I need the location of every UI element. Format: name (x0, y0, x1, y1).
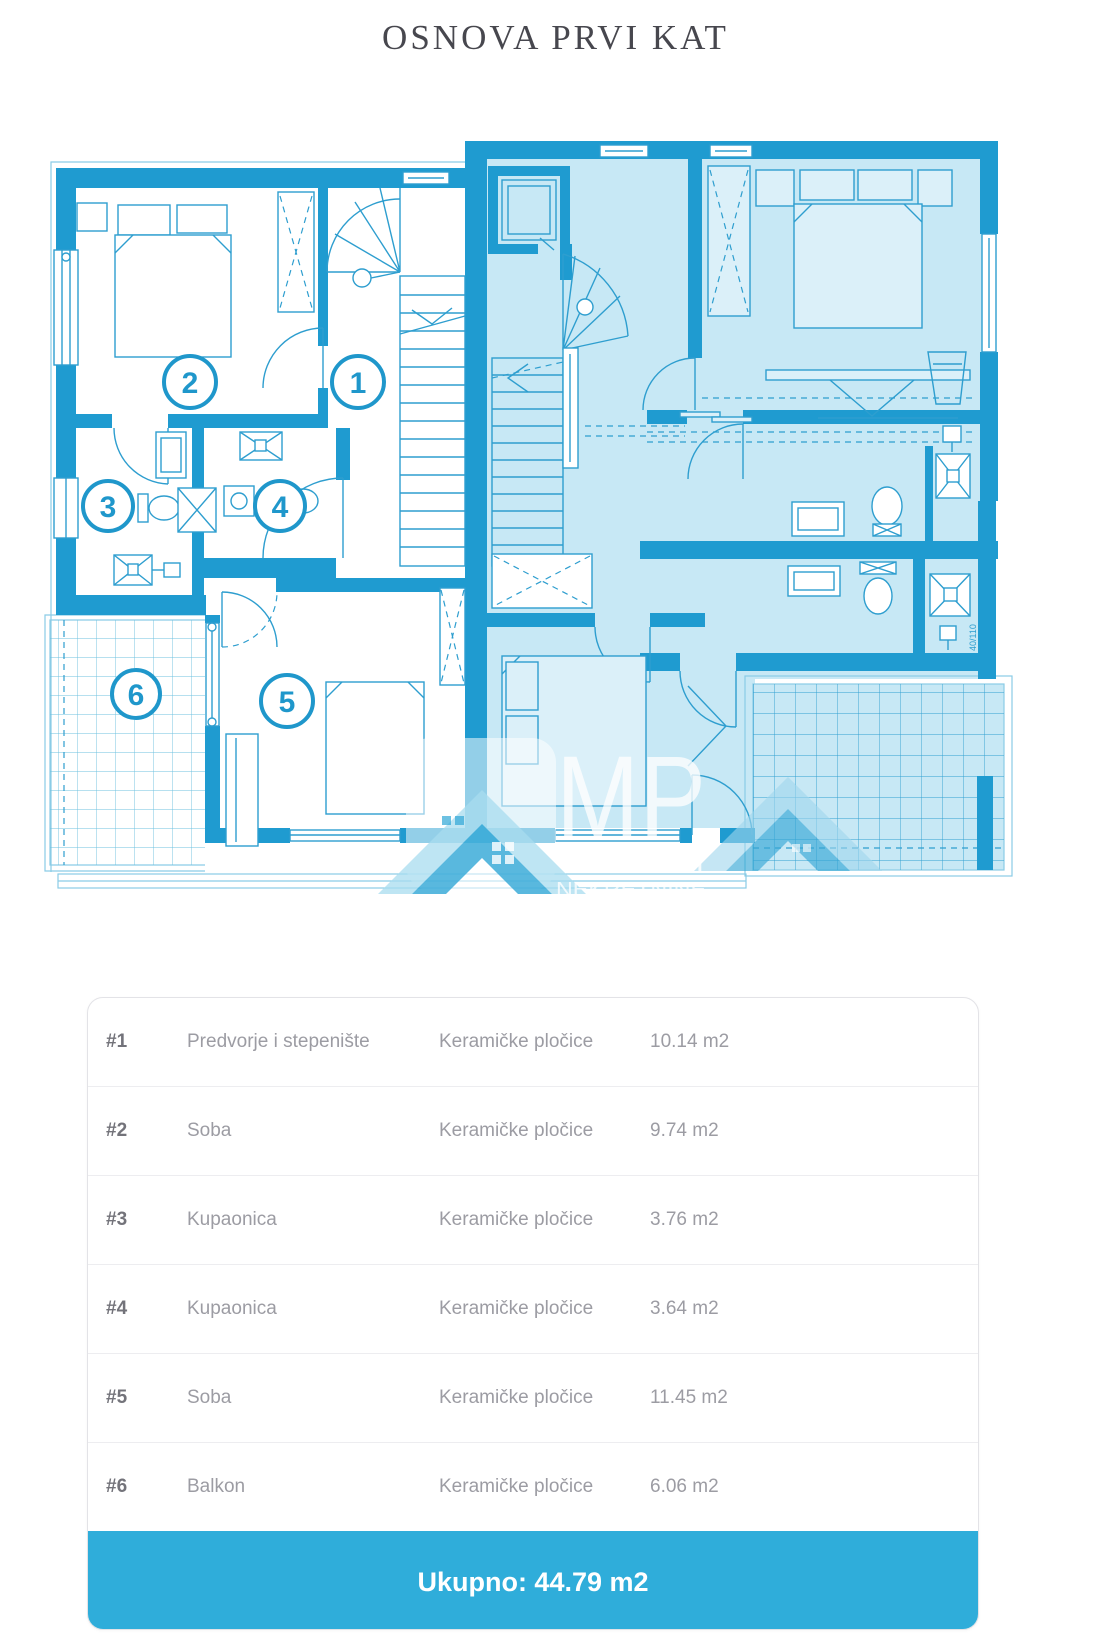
room-number: #5 (88, 1387, 187, 1409)
room-area: 3.76 m2 (650, 1209, 978, 1231)
shower-bath-lower (930, 574, 970, 616)
table-row: #1 Predvorje i stepenište Keramičke ploč… (88, 998, 978, 1086)
nightstand (918, 170, 952, 206)
room-area: 6.06 m2 (650, 1476, 978, 1498)
svg-text:1: 1 (350, 367, 367, 400)
room-finish: Keramičke pločice (439, 1387, 650, 1409)
room-name: Kupaonica (187, 1209, 439, 1231)
room-area: 9.74 m2 (650, 1120, 978, 1142)
wardrobe-bedroom-right (708, 166, 750, 316)
watermark-line2: NEKRETNINE (556, 879, 706, 901)
sink-bath-upper (792, 502, 844, 536)
stair-rail (563, 348, 578, 468)
floor-plan: 40/110 1 2 3 4 5 6 MP TURIZA (40, 126, 1015, 901)
room-finish: Keramičke pločice (439, 1298, 650, 1320)
pillow (858, 170, 912, 200)
shower-control-room3 (152, 563, 180, 577)
room-number: #6 (88, 1476, 187, 1498)
pillow (506, 662, 538, 710)
room-name: Balkon (187, 1476, 439, 1498)
room-name: Soba (187, 1120, 439, 1142)
svg-text:6: 6 (128, 679, 145, 712)
room-number: #1 (88, 1031, 187, 1053)
wardrobe-room2 (278, 192, 314, 312)
washer-room3 (178, 488, 216, 532)
room-table-card: #1 Predvorje i stepenište Keramičke ploč… (87, 997, 979, 1630)
stair-post (577, 299, 593, 315)
room-marker-3: 3 (83, 481, 133, 531)
nightstand (756, 170, 794, 206)
room-finish: Keramičke pločice (439, 1476, 650, 1498)
door-arc-room2 (263, 328, 323, 388)
room-area: 10.14 m2 (650, 1031, 978, 1053)
wardrobe-hall (492, 554, 592, 608)
table-row: #3 Kupaonica Keramičke pločice 3.76 m2 (88, 1175, 978, 1264)
watermark-logo-text: MP (556, 732, 706, 864)
sink-bath-lower (788, 566, 840, 596)
room-number: #2 (88, 1120, 187, 1142)
wardrobe-room5 (440, 588, 465, 685)
shower-room4 (240, 432, 282, 460)
table-row: #2 Soba Keramičke pločice 9.74 m2 (88, 1086, 978, 1175)
dimension-label: 40/110 (968, 624, 978, 651)
room-name: Soba (187, 1387, 439, 1409)
room-marker-2: 2 (164, 356, 216, 408)
room-area: 11.45 m2 (650, 1387, 978, 1409)
toilet-bath-upper (872, 487, 902, 536)
room-name: Predvorje i stepenište (187, 1031, 439, 1053)
shower-bath-upper (936, 454, 970, 498)
room-finish: Keramičke pločice (439, 1209, 650, 1231)
door-arc-room5 (222, 592, 277, 647)
total-area-label: Ukupno: 44.79 m2 (417, 1567, 648, 1598)
room-finish: Keramičke pločice (439, 1031, 650, 1053)
svg-text:3: 3 (100, 491, 117, 524)
sink-room4 (224, 486, 254, 516)
toilet-room3 (138, 494, 179, 522)
room-marker-5: 5 (261, 675, 313, 727)
svg-text:5: 5 (279, 686, 296, 719)
room-marker-6: 6 (112, 670, 160, 718)
total-area-bar: Ukupno: 44.79 m2 (88, 1531, 978, 1630)
room-finish: Keramičke pločice (439, 1120, 650, 1142)
room-number: #4 (88, 1298, 187, 1320)
svg-text:2: 2 (182, 367, 199, 400)
room-number: #3 (88, 1209, 187, 1231)
pillow (800, 170, 854, 200)
stair-walkline (400, 308, 465, 334)
dresser-room5 (226, 734, 258, 846)
bed-room2 (115, 235, 231, 357)
room-area: 3.64 m2 (650, 1298, 978, 1320)
table-row: #4 Kupaonica Keramičke pločice 3.64 m2 (88, 1264, 978, 1353)
room-marker-1: 1 (332, 356, 384, 408)
sink-room3 (156, 432, 186, 478)
table-row: #6 Balkon Keramičke pločice 6.06 m2 (88, 1442, 978, 1531)
room-markers: 1 2 3 4 5 6 (83, 356, 384, 727)
svg-text:4: 4 (272, 491, 289, 524)
floor-plan-svg: 40/110 1 2 3 4 5 6 MP TURIZA (40, 126, 1015, 901)
bed-right (794, 204, 922, 328)
page-title: OSNOVA PRVI KAT (0, 18, 1111, 58)
shower-room3 (114, 555, 152, 585)
watermark-line1: TURIZAM (556, 850, 704, 876)
balcony-left-tiles (50, 620, 205, 865)
room-name: Kupaonica (187, 1298, 439, 1320)
table-row: #5 Soba Keramičke pločice 11.45 m2 (88, 1353, 978, 1442)
room-marker-4: 4 (255, 481, 305, 531)
stair-post (353, 269, 371, 287)
